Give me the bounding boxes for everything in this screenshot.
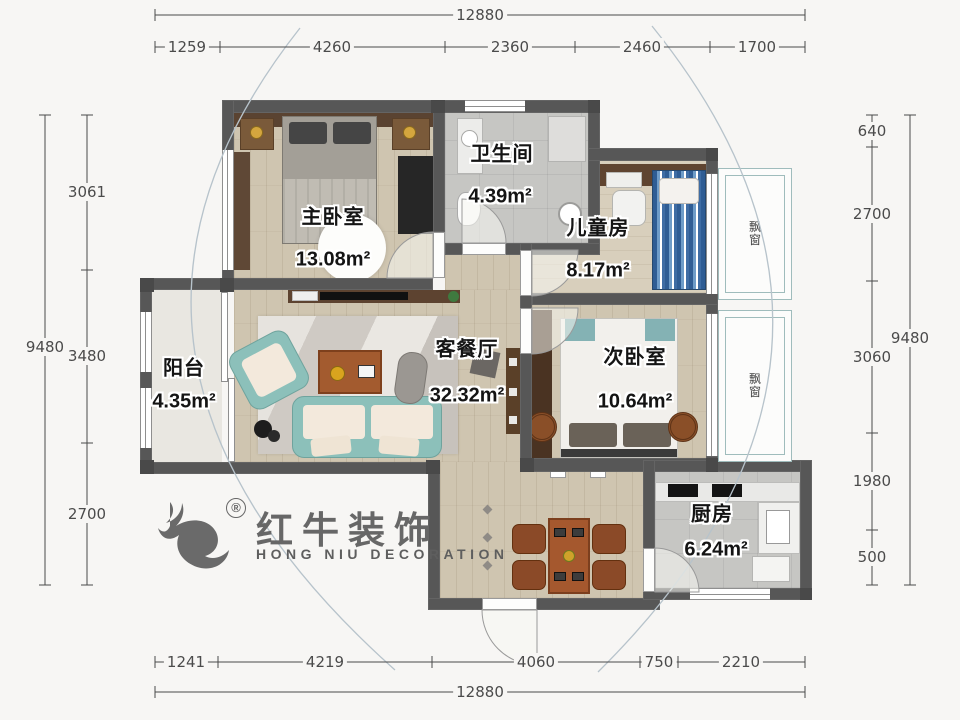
brand-name-en: HONG NIU DECORATION bbox=[256, 546, 508, 562]
dim-right-total: 9480 bbox=[888, 329, 932, 347]
dim-top-seg: 1259 bbox=[165, 38, 209, 56]
dim-bottom-seg: 1241 bbox=[164, 653, 208, 671]
floor-plan: 飘窗 飘窗 12880 1259 4260 2360 2460 bbox=[0, 0, 960, 720]
dim-bottom-seg: 2210 bbox=[719, 653, 763, 671]
room-area-kitchen: 6.24m² bbox=[684, 539, 747, 562]
dim-bottom-seg: 4060 bbox=[514, 653, 558, 671]
dim-bottom-total: 12880 bbox=[453, 683, 507, 701]
dim-top-total: 12880 bbox=[453, 6, 507, 24]
dim-top-seg: 1700 bbox=[735, 38, 779, 56]
dim-left-total: 9480 bbox=[23, 338, 67, 356]
room-area-living: 32.32m² bbox=[430, 385, 505, 408]
dim-right-seg: 500 bbox=[855, 548, 890, 566]
dim-top-seg: 4260 bbox=[310, 38, 354, 56]
room-area-master: 13.08m² bbox=[296, 249, 371, 272]
room-name-master: 主卧室 bbox=[302, 201, 365, 230]
room-name-balcony: 阳台 bbox=[163, 352, 205, 381]
dim-right-seg: 3060 bbox=[850, 348, 894, 366]
room-name-kids: 儿童房 bbox=[567, 212, 630, 241]
dim-bottom-seg: 4219 bbox=[303, 653, 347, 671]
brand-logo: ® 红牛装饰 HONG NIU DECORATION bbox=[148, 498, 448, 598]
room-area-balcony: 4.35m² bbox=[152, 391, 215, 414]
dim-right-seg: 640 bbox=[855, 122, 890, 140]
dim-left-seg: 3480 bbox=[65, 347, 109, 365]
registered-mark: ® bbox=[226, 498, 246, 518]
dim-top-seg: 2360 bbox=[488, 38, 532, 56]
room-area-bath: 4.39m² bbox=[468, 186, 531, 209]
room-area-second: 10.64m² bbox=[598, 391, 673, 414]
dim-left-seg: 2700 bbox=[65, 505, 109, 523]
dim-right-seg: 1980 bbox=[850, 472, 894, 490]
room-name-living: 客餐厅 bbox=[436, 333, 499, 362]
dim-bottom-seg: 750 bbox=[642, 653, 677, 671]
room-name-bath: 卫生间 bbox=[471, 138, 534, 167]
dim-left-seg: 3061 bbox=[65, 183, 109, 201]
dim-right-seg: 2700 bbox=[850, 205, 894, 223]
room-name-kitchen: 厨房 bbox=[691, 498, 733, 527]
room-area-kids: 8.17m² bbox=[566, 260, 629, 283]
room-name-second: 次卧室 bbox=[604, 341, 667, 370]
dim-top-seg: 2460 bbox=[620, 38, 664, 56]
